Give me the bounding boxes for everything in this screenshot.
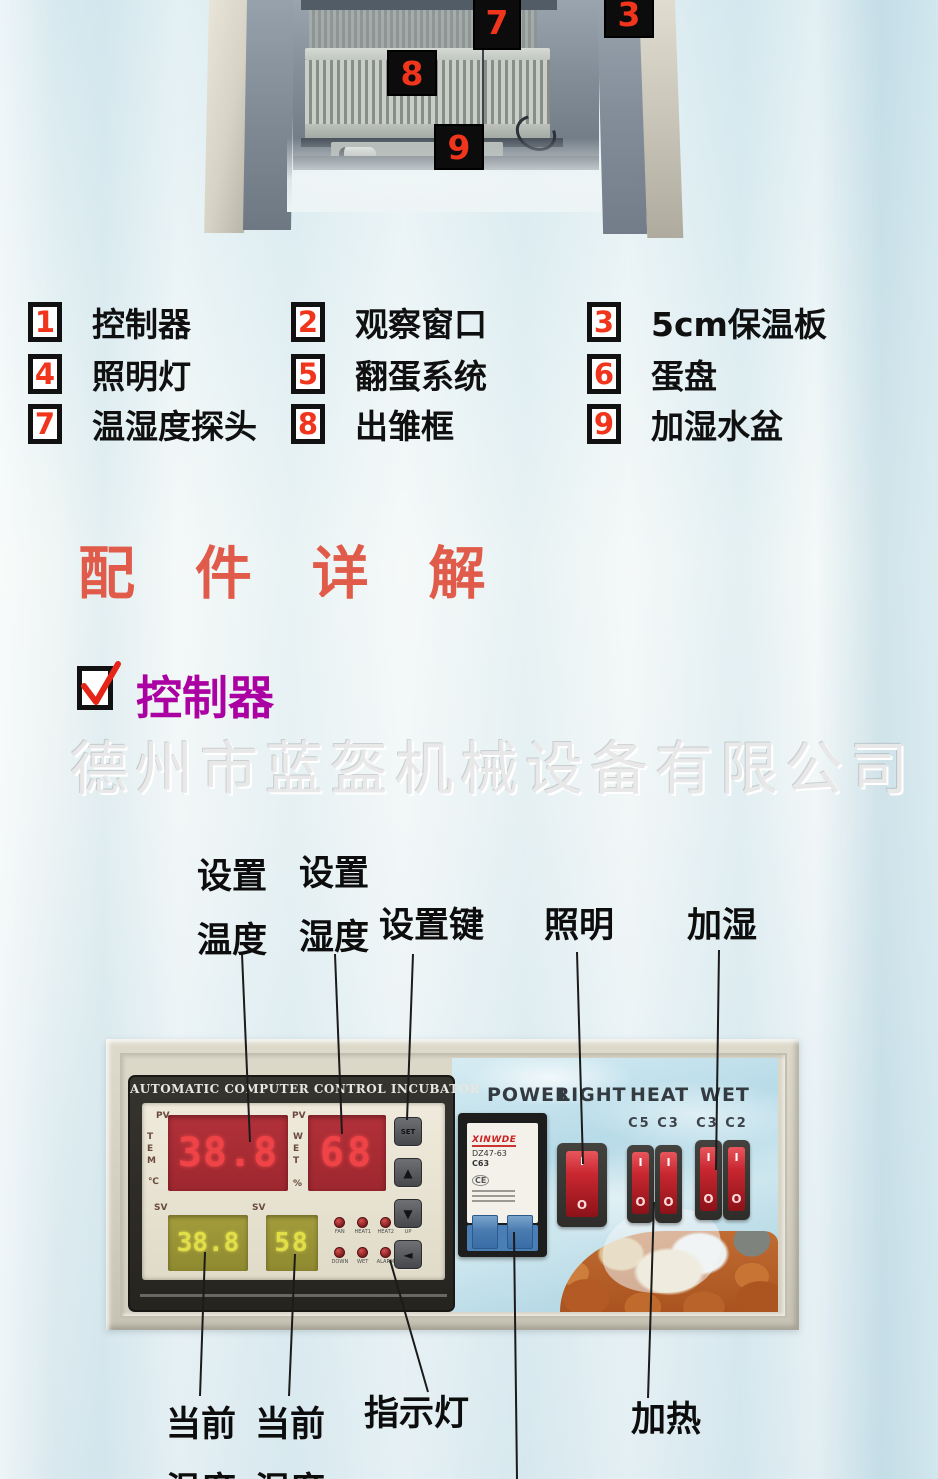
- legend-item-9: 9加湿水盆: [587, 400, 783, 448]
- legend-number-box: 2: [291, 302, 325, 342]
- light-rocker-switch: I O: [557, 1143, 607, 1227]
- legend-number: 3: [594, 305, 614, 339]
- breaker-rating: C63: [472, 1159, 533, 1168]
- led-label: ALARM: [377, 1259, 395, 1265]
- rocker-on-mark: I: [734, 1153, 738, 1163]
- header-heat: HEAT: [630, 1084, 689, 1106]
- badge-number: 7: [486, 3, 509, 42]
- callout-line1: 当前: [255, 1392, 325, 1458]
- legend-number-box: 8: [291, 404, 325, 444]
- breaker-toggle-right: [507, 1215, 533, 1249]
- callout-line1: 当前: [166, 1392, 236, 1458]
- pv-temperature-display: 38.8: [168, 1115, 288, 1191]
- product-detail-page: 7 8 9 3 1控制器 2观察窗口 35cm保温板 4照明灯 5翻蛋系统 6蛋…: [0, 0, 938, 1479]
- rocker: I O: [728, 1147, 745, 1211]
- led-dot: [380, 1247, 391, 1258]
- rocker: I O: [566, 1151, 598, 1217]
- header-light: LIGHT: [558, 1084, 627, 1106]
- legend-number: 2: [298, 305, 318, 339]
- rocker-off-mark: O: [731, 1193, 741, 1205]
- rocker-off-mark: O: [635, 1196, 645, 1208]
- sv-humidity-display: 58: [266, 1215, 318, 1271]
- led-dot: [357, 1247, 368, 1258]
- legend-label: 5cm保温板: [651, 298, 827, 346]
- photo-badge-9: 9: [434, 124, 484, 170]
- legend-item-5: 5翻蛋系统: [291, 350, 487, 398]
- rocker-on-mark: I: [706, 1153, 710, 1163]
- left-door-steel-edge: [204, 0, 249, 233]
- legend-item-6: 6蛋盘: [587, 350, 717, 398]
- breaker-switch-base: [467, 1225, 538, 1251]
- badge-number: 9: [448, 128, 471, 167]
- led-wet: WET: [351, 1247, 374, 1265]
- rocker-off-mark: O: [577, 1199, 587, 1211]
- callout-set-temp: 设置温度: [197, 845, 267, 973]
- sv-label: SV: [154, 1203, 167, 1213]
- pv-label: PV: [292, 1111, 306, 1121]
- legend-label: 观察窗口: [355, 298, 487, 346]
- legend-number-box: 1: [28, 302, 62, 342]
- legend-number: 4: [35, 357, 55, 391]
- celsius-label: ℃: [148, 1177, 159, 1187]
- legend-label: 温湿度探头: [92, 400, 257, 448]
- legend-item-2: 2观察窗口: [291, 298, 487, 346]
- aux-button: ◄: [394, 1240, 422, 1269]
- incubator-controller: AUTOMATIC COMPUTER CONTROL INCUBATOR PV …: [128, 1075, 455, 1312]
- rocker-off-mark: O: [663, 1196, 673, 1208]
- tem-label: TEM: [147, 1131, 153, 1167]
- controller-header: AUTOMATIC COMPUTER CONTROL INCUBATOR: [130, 1082, 453, 1096]
- badge-number: 3: [618, 0, 641, 34]
- legend-label: 加湿水盆: [651, 400, 783, 448]
- legend-number: 1: [35, 305, 55, 339]
- led-label: WET: [357, 1259, 368, 1265]
- ce-mark: CE: [472, 1175, 489, 1186]
- callout-heating: 加热: [631, 1398, 701, 1442]
- legend-item-7: 7温湿度探头: [28, 400, 257, 448]
- breaker-toggle-left: [472, 1215, 498, 1249]
- pv-humidity-display: 68: [308, 1115, 386, 1191]
- legend-item-1: 1控制器: [28, 298, 191, 346]
- controller-buttons: SET ▲ ▼ ◄: [394, 1117, 422, 1269]
- rocker-off-mark: O: [703, 1193, 713, 1205]
- led-dot: [334, 1217, 345, 1228]
- callout-line2: 温度: [197, 909, 267, 973]
- switch-panel: POWER LIGHT HEAT WET C5 C3 C3 C2 XINWDE …: [452, 1058, 778, 1312]
- legend-number-box: 4: [28, 354, 62, 394]
- photo-badge-8: 8: [387, 50, 437, 96]
- percent-label: %: [293, 1179, 302, 1189]
- led-dot: [357, 1217, 368, 1228]
- badge-number: 8: [401, 54, 424, 93]
- wet-rocker-switch-1: I O: [695, 1140, 722, 1220]
- rocker-on-mark: I: [666, 1158, 670, 1168]
- company-watermark: 德州市蓝盔机械设备有限公司: [70, 722, 915, 806]
- legend-item-3: 35cm保温板: [587, 298, 827, 346]
- basket-base: [305, 124, 550, 138]
- header-wet: WET: [700, 1084, 750, 1106]
- sv-label: SV: [252, 1203, 265, 1213]
- legend-label: 蛋盘: [651, 350, 717, 398]
- section-title: 配 件 详 解: [78, 528, 506, 610]
- breaker-body: XINWDE DZ47-63 C63 CE: [467, 1123, 538, 1223]
- led-heat1: HEAT1: [351, 1217, 374, 1235]
- breaker-spec-lines: [472, 1190, 533, 1202]
- rocker: I O: [700, 1147, 717, 1211]
- breaker-brand: XINWDE: [472, 1135, 516, 1147]
- led-down: DOWN: [328, 1247, 351, 1265]
- heat-switch-sublabel: C5 C3: [624, 1116, 684, 1131]
- legend-label: 照明灯: [92, 350, 191, 398]
- legend-number: 9: [594, 407, 614, 441]
- legend-label: 翻蛋系统: [355, 350, 487, 398]
- legend-number-box: 9: [587, 404, 621, 444]
- legend-number-box: 6: [587, 354, 621, 394]
- circuit-breaker: XINWDE DZ47-63 C63 CE: [458, 1113, 547, 1257]
- photo-badge-3: 3: [604, 0, 654, 38]
- breaker-model: DZ47-63: [472, 1149, 533, 1159]
- led-label: FAN: [335, 1229, 345, 1235]
- rocker-on-mark: I: [580, 1157, 584, 1167]
- callout-line1: 设置: [197, 845, 267, 909]
- heat-rocker-switch-2: I O: [655, 1145, 682, 1223]
- legend-label: 出雏框: [355, 400, 454, 448]
- led-label: HEAT2: [377, 1229, 394, 1235]
- rocker: I O: [660, 1152, 677, 1214]
- controller-bottom-trim: [140, 1294, 447, 1297]
- check-icon: [79, 656, 123, 712]
- photo-badge-7: 7: [473, 0, 521, 50]
- callout-set-humidity: 设置湿度: [299, 842, 369, 970]
- rocker-on-mark: I: [638, 1158, 642, 1168]
- callout-line2: 温度: [166, 1458, 236, 1479]
- legend-number-box: 7: [28, 404, 62, 444]
- down-arrow-button: ▼: [394, 1199, 422, 1228]
- wet-switch-sublabel: C3 C2: [692, 1116, 752, 1131]
- heat-rocker-switch-1: I O: [627, 1145, 654, 1223]
- subsection-title: 控制器: [136, 662, 274, 728]
- callout-humidify: 加湿: [687, 906, 757, 946]
- callout-line2: 湿度: [299, 906, 369, 970]
- wet-label: WET: [293, 1131, 299, 1167]
- legend-number-box: 5: [291, 354, 325, 394]
- up-arrow-button: ▲: [394, 1158, 422, 1187]
- set-button: SET: [394, 1117, 422, 1146]
- led-label: HEAT1: [354, 1229, 371, 1235]
- controller-face: PV TEM ℃ 38.8 PV WET % 68 SV 38.8 SV 58 …: [142, 1103, 445, 1280]
- led-dot: [380, 1217, 391, 1228]
- led-fan: FAN: [328, 1217, 351, 1235]
- callout-current-humidity: 当前湿度: [255, 1392, 325, 1479]
- led-label: DOWN: [331, 1259, 348, 1265]
- legend-label: 控制器: [92, 298, 191, 346]
- legend-item-4: 4照明灯: [28, 350, 191, 398]
- callout-line2: 湿度: [255, 1458, 325, 1479]
- legend-item-8: 8出雏框: [291, 400, 454, 448]
- callout-set-key: 设置键: [379, 906, 484, 946]
- led-dot: [334, 1247, 345, 1258]
- callout-line1: 设置: [299, 842, 369, 906]
- rocker: I O: [632, 1152, 649, 1214]
- wet-rocker-switch-2: I O: [723, 1140, 750, 1220]
- indicator-led-row-2: DOWN WET ALARM: [328, 1247, 397, 1265]
- sv-temperature-display: 38.8: [168, 1215, 248, 1271]
- control-panel-photo: POWER LIGHT HEAT WET C5 C3 C3 C2 XINWDE …: [106, 1039, 799, 1330]
- callout-lighting: 照明: [544, 906, 614, 946]
- legend-number: 5: [298, 357, 318, 391]
- legend-number-box: 3: [587, 302, 621, 342]
- legend-number: 8: [298, 407, 318, 441]
- legend-number: 6: [594, 357, 614, 391]
- legend-number: 7: [35, 407, 55, 441]
- callout-indicator: 指示灯: [364, 1392, 469, 1436]
- callout-current-temp: 当前温度: [166, 1392, 236, 1479]
